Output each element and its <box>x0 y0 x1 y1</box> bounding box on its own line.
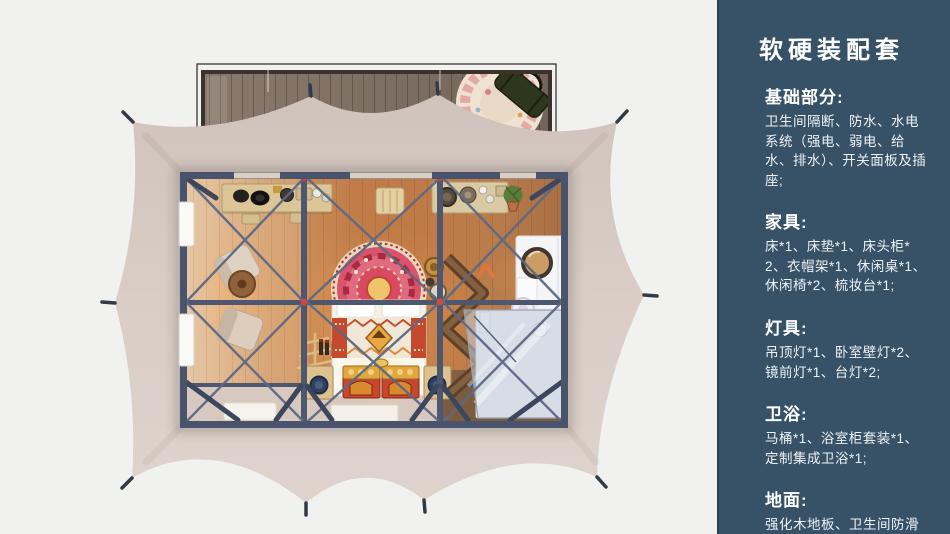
wall-gap <box>500 173 536 179</box>
section-body: 床*1、床垫*1、床头柜*2、衣帽架*1、休闲桌*1、休闲椅*2、梳妆台*1; <box>765 237 930 296</box>
section-heading: 家具: <box>765 208 930 233</box>
floorplan-graphic <box>0 0 717 534</box>
stool <box>242 214 260 224</box>
panel-title: 软硬装配套 <box>723 30 940 65</box>
stake-icon <box>102 302 115 303</box>
section-heading: 卫浴: <box>765 400 930 425</box>
round-side-table <box>229 271 255 297</box>
stake-icon <box>644 295 657 296</box>
hat <box>233 190 249 203</box>
section-lighting: 灯具: 吊顶灯*1、卧室壁灯*2、镜前灯*1、台灯*2; <box>765 314 930 382</box>
wall-gap <box>234 173 280 179</box>
section-bathroom: 卫浴: 马桶*1、浴室柜套装*1、定制集成卫浴*1; <box>765 400 930 468</box>
section-body: 卫生间隔断、防水、水电系统（强电、弱电、给水、排水）、开关面板及插座; <box>765 112 930 190</box>
section-heading: 地面: <box>765 486 930 511</box>
pillow <box>382 303 420 317</box>
stake-icon <box>437 83 438 94</box>
slide: 软硬装配套 基础部分: 卫生间隔断、防水、水电系统（强电、弱电、给水、排水）、开… <box>0 0 950 534</box>
section-heading: 基础部分: <box>765 83 930 108</box>
stake-icon <box>310 85 311 96</box>
section-body: 吊顶灯*1、卧室壁灯*2、镜前灯*1、台灯*2; <box>765 343 930 382</box>
integrated-bathroom <box>464 310 562 418</box>
frame-connector <box>301 299 308 306</box>
frame-connector <box>437 299 444 306</box>
window-panel <box>179 202 194 246</box>
stake-icon <box>424 500 425 512</box>
wood-chair <box>376 188 404 214</box>
room <box>179 173 572 427</box>
section-heading: 灯具: <box>765 314 930 339</box>
info-panel: 软硬装配套 基础部分: 卫生间隔断、防水、水电系统（强电、弱电、给水、排水）、开… <box>717 0 950 534</box>
section-body: 马桶*1、浴室柜套装*1、定制集成卫浴*1; <box>765 429 930 468</box>
pillow <box>337 303 375 317</box>
section-flooring: 地面: 强化木地板、卫生间防滑防潮石塑板; <box>765 486 930 534</box>
section-body: 强化木地板、卫生间防滑防潮石塑板; <box>765 515 930 534</box>
vanity-mirror <box>523 249 551 277</box>
section-basics: 基础部分: 卫生间隔断、防水、水电系统（强电、弱电、给水、排水）、开关面板及插座… <box>765 83 930 190</box>
tea-console <box>432 182 508 213</box>
section-furniture: 家具: 床*1、床垫*1、床头柜*2、衣帽架*1、休闲桌*1、休闲椅*2、梳妆台… <box>765 208 930 296</box>
floor-mat <box>331 405 398 422</box>
dowry-trunk <box>343 366 380 398</box>
wall-gap <box>350 173 432 179</box>
dowry-trunk <box>382 366 419 398</box>
mid-beam <box>184 300 564 305</box>
floorplan-panel <box>0 0 717 534</box>
window-panel <box>179 314 194 366</box>
